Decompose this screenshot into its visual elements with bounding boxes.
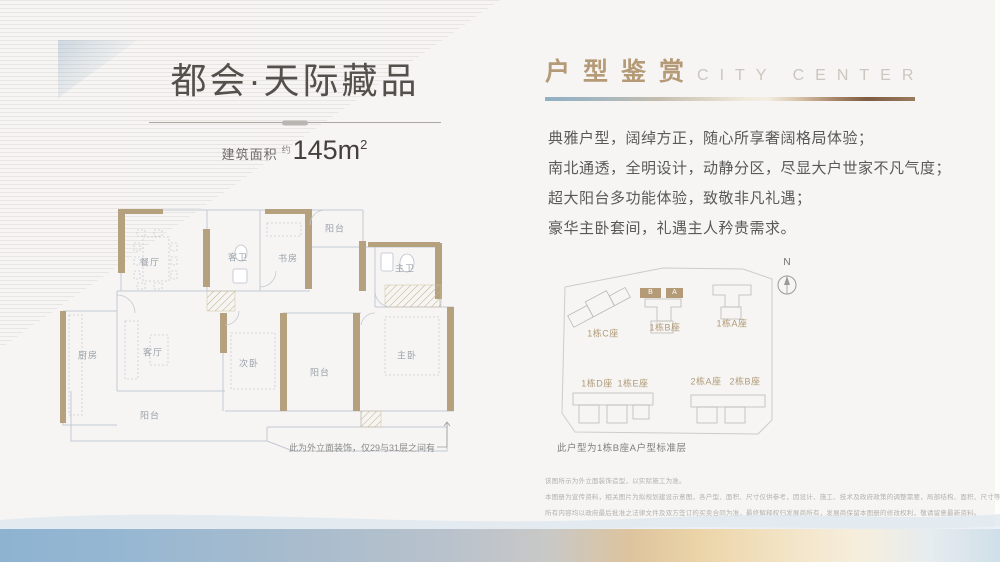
area-sup: 2 bbox=[360, 137, 368, 152]
brochure-page: 都会·天际藏品 建筑面积约145m2 户型鉴赏 CITY CENTER 典雅户型… bbox=[0, 0, 1000, 562]
room-label-study: 书房 bbox=[278, 252, 298, 265]
note-leader-line bbox=[437, 422, 450, 447]
room-label-guest-bath: 客卫 bbox=[228, 251, 248, 264]
building-label-2a: 2栋A座 bbox=[690, 375, 721, 388]
floorplan-note: 此为外立面装饰，仅29与31层之间有 bbox=[260, 441, 435, 454]
siteplan: N B A 1栋C座 1栋B座 1栋A座 1栋D座 1栋E座 2栋A座 2栋B座 bbox=[545, 255, 810, 450]
building-label-1d: 1栋D座 bbox=[581, 377, 613, 390]
divider-pill bbox=[282, 120, 308, 125]
room-label-dining: 餐厅 bbox=[140, 256, 160, 269]
siteplan-caption: 此户型为1栋B座A户型标准层 bbox=[557, 440, 686, 454]
room-label-kitchen: 厨房 bbox=[78, 349, 98, 362]
area-label: 建筑面积 bbox=[222, 147, 278, 162]
intro-line-3: 超大阳台多功能体验，致敬非凡礼遇； bbox=[548, 184, 978, 214]
intro-line-4: 豪华主卧套间，礼遇主人矜贵需求。 bbox=[548, 214, 978, 244]
room-label-balcony-mid: 阳台 bbox=[310, 366, 330, 379]
page-title: 都会·天际藏品 bbox=[55, 52, 535, 104]
siteplan-drawing bbox=[545, 255, 810, 450]
bottom-gradient-band bbox=[0, 529, 1000, 562]
title-divider bbox=[149, 122, 441, 123]
room-label-living: 客厅 bbox=[143, 346, 163, 359]
section-header: 户型鉴赏 CITY CENTER bbox=[545, 52, 915, 101]
room-label-balcony-top: 阳台 bbox=[325, 222, 345, 235]
north-label: N bbox=[783, 257, 790, 268]
intro-line-1: 典雅户型，阔绰方正，随心所享奢阔格局体验； bbox=[548, 124, 978, 154]
intro-paragraph: 典雅户型，阔绰方正，随心所享奢阔格局体验； 南北通透，全明设计，动静分区，尽显大… bbox=[548, 124, 978, 244]
building-label-1a: 1栋A座 bbox=[716, 317, 747, 330]
area-value: 145m bbox=[293, 135, 361, 165]
building-label-1e: 1栋E座 bbox=[617, 377, 648, 390]
unit-badge-a: A bbox=[666, 288, 683, 298]
unit-badge-b: B bbox=[640, 288, 661, 298]
section-title-en: CITY CENTER bbox=[697, 67, 924, 85]
room-label-master-bedroom: 主卧 bbox=[397, 349, 417, 362]
floorplan-drawing bbox=[55, 195, 465, 465]
intro-line-2: 南北通透，全明设计，动静分区，尽显大户世家不凡气度； bbox=[548, 154, 978, 184]
floorplan: 餐厅 客卫 书房 阳台 主卫 厨房 客厅 次卧 阳台 主卧 阳台 此为外立面装饰… bbox=[55, 195, 465, 465]
disclaimer-line-1: 该图所示为外立面装饰造型，以实际施工为准。 bbox=[545, 474, 985, 490]
room-label-master-bath: 主卫 bbox=[395, 262, 415, 275]
building-label-1c: 1栋C座 bbox=[587, 327, 619, 340]
room-label-bedroom2: 次卧 bbox=[239, 357, 259, 370]
building-label-1b: 1栋B座 bbox=[649, 321, 680, 334]
north-compass-icon bbox=[778, 276, 796, 294]
area-approx: 约 bbox=[282, 145, 292, 155]
title-block: 都会·天际藏品 建筑面积约145m2 bbox=[55, 52, 535, 166]
building-label-2b: 2栋B座 bbox=[729, 375, 760, 388]
right-edge-highlight bbox=[995, 0, 1000, 562]
gradient-bar-decor bbox=[545, 97, 915, 101]
area-line: 建筑面积约145m2 bbox=[55, 135, 535, 166]
room-label-balcony-bottom: 阳台 bbox=[140, 409, 160, 422]
section-title-cn: 户型鉴赏 bbox=[545, 52, 697, 88]
